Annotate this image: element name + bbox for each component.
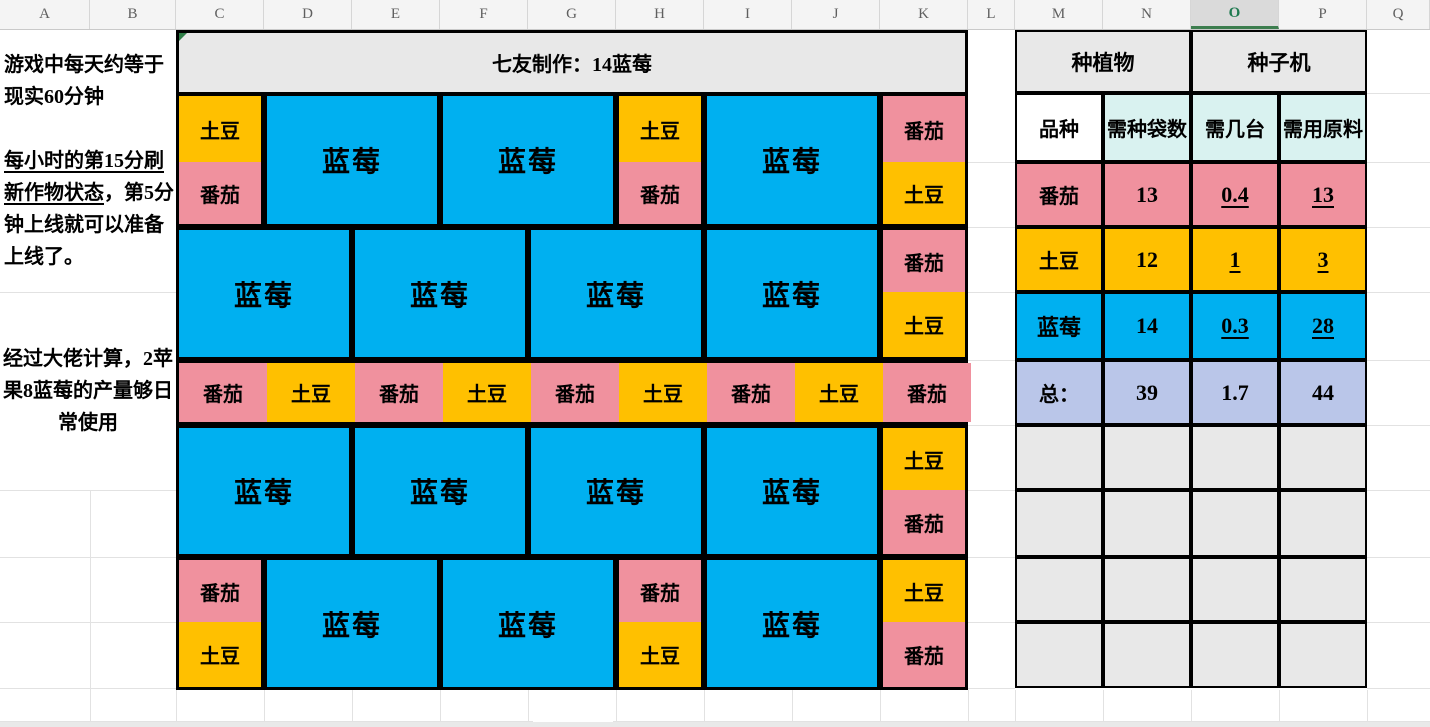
table-row-3-machines[interactable]: 1.7	[1191, 360, 1279, 425]
gridline	[968, 360, 1015, 361]
table-row-0-bags[interactable]: 13	[1103, 162, 1191, 227]
table-row-3-name-text: 总：	[1039, 378, 1079, 407]
table-col-header-1-text: 需种袋数	[1107, 113, 1187, 142]
table-group-header-plants[interactable]: 种植物	[1015, 30, 1191, 93]
table-group-header-plants-text: 种植物	[1072, 47, 1135, 77]
gridline	[968, 622, 1015, 623]
gridline	[528, 690, 529, 722]
table-empty-cell[interactable]	[1015, 622, 1103, 688]
table-row-0-name-text: 番茄	[1039, 180, 1079, 209]
note-text-game-time: 游戏中每天约等于现实60分钟每小时的第15分刷新作物状态，第5分钟上线就可以准备…	[2, 49, 176, 273]
table-row-2-machines[interactable]: 0.3	[1191, 292, 1279, 360]
gridline	[968, 557, 1015, 558]
farm-cell-blueberry[interactable]: 蓝莓	[704, 557, 880, 690]
farm-stack-block: 番茄土豆	[616, 557, 704, 690]
farm-cell-blueberry[interactable]: 蓝莓	[352, 227, 528, 360]
farm-stack-block: 土豆番茄	[880, 557, 968, 690]
note-cell-production[interactable]: 经过大佬计算，2苹果8蓝莓的产量够日常使用	[0, 292, 176, 490]
table-row-3-materials[interactable]: 44	[1279, 360, 1367, 425]
table-row-1-bags-text: 12	[1136, 247, 1158, 273]
farm-cell-blueberry[interactable]: 蓝莓	[440, 93, 616, 227]
table-col-header-3-text: 需用原料	[1283, 113, 1363, 142]
gridline	[968, 425, 1015, 426]
table-row-1-materials[interactable]: 3	[1279, 227, 1367, 292]
gridline	[1367, 162, 1430, 163]
table-row-1-name[interactable]: 土豆	[1015, 227, 1103, 292]
column-header-d[interactable]: D	[264, 0, 352, 29]
table-col-header-2-text: 需几台	[1205, 113, 1265, 142]
farm-cell-blueberry[interactable]: 蓝莓	[264, 557, 440, 690]
farm-cell-blueberry[interactable]: 蓝莓	[528, 425, 704, 557]
gridline	[1367, 360, 1430, 361]
gridline	[1367, 557, 1430, 558]
gridline	[0, 490, 176, 491]
gridline	[968, 227, 1015, 228]
table-row-3-materials-text: 44	[1312, 380, 1334, 406]
table-row-0-materials-text: 13	[1312, 182, 1334, 208]
column-header-l[interactable]: L	[968, 0, 1015, 29]
farm-cell-tomato[interactable]: 番茄	[179, 560, 261, 622]
column-header-q[interactable]: Q	[1367, 0, 1430, 29]
table-row-0-bags-text: 13	[1136, 182, 1158, 208]
gridline	[1103, 690, 1104, 722]
column-header-f[interactable]: F	[440, 0, 528, 29]
farm-cell-potato[interactable]: 土豆	[883, 428, 965, 490]
table-empty-cell[interactable]	[1279, 557, 1367, 622]
column-header-c[interactable]: C	[176, 0, 264, 29]
gridline	[0, 557, 176, 558]
gridline	[1367, 690, 1368, 722]
table-empty-cell[interactable]	[1279, 622, 1367, 688]
table-row-2-name-text: 蓝莓	[1037, 310, 1081, 342]
farm-cell-potato[interactable]: 土豆	[179, 622, 261, 687]
farm-cell-potato[interactable]: 土豆	[619, 622, 701, 687]
farm-stack-block: 土豆番茄	[616, 93, 704, 227]
gridline	[616, 690, 617, 722]
gridline	[1191, 690, 1192, 722]
column-header-j[interactable]: J	[792, 0, 880, 29]
gridline	[176, 690, 177, 722]
farm-stack-block: 番茄土豆	[176, 557, 264, 690]
gridline	[1367, 688, 1430, 689]
gridline	[1367, 227, 1430, 228]
farm-cell-tomato[interactable]: 番茄	[355, 363, 443, 422]
column-header-p[interactable]: P	[1279, 0, 1367, 29]
farm-cell-tomato[interactable]: 番茄	[179, 363, 267, 422]
table-row-1-materials-text: 3	[1318, 247, 1329, 273]
table-row-2-machines-text: 0.3	[1221, 313, 1249, 339]
farm-stack-block: 土豆番茄	[176, 93, 264, 227]
gridline	[352, 690, 353, 722]
table-row-1-bags[interactable]: 12	[1103, 227, 1191, 292]
table-row-2-bags-text: 14	[1136, 313, 1158, 339]
gridline	[440, 690, 441, 722]
column-header-m[interactable]: M	[1015, 0, 1103, 29]
horizontal-scrollbar[interactable]	[0, 722, 1430, 727]
table-empty-cell[interactable]	[1015, 490, 1103, 557]
table-row-2-bags[interactable]: 14	[1103, 292, 1191, 360]
column-header-k[interactable]: K	[880, 0, 968, 29]
column-header-g[interactable]: G	[528, 0, 616, 29]
table-group-header-seed-machine-text: 种子机	[1248, 47, 1311, 77]
gridline	[968, 688, 1015, 689]
gridline	[880, 690, 881, 722]
farm-cell-blueberry[interactable]: 蓝莓	[528, 227, 704, 360]
table-row-2-materials-text: 28	[1312, 313, 1334, 339]
farm-cell-tomato[interactable]: 番茄	[883, 490, 965, 554]
farm-stack-block: 土豆番茄	[880, 425, 968, 557]
table-col-header-0[interactable]: 品种	[1015, 93, 1103, 162]
farm-cell-tomato[interactable]: 番茄	[179, 162, 261, 224]
farm-cell-potato[interactable]: 土豆	[883, 162, 965, 224]
farm-cell-tomato[interactable]: 番茄	[883, 230, 965, 292]
farm-cell-blueberry[interactable]: 蓝莓	[440, 557, 616, 690]
gridline	[792, 690, 793, 722]
column-header-e[interactable]: E	[352, 0, 440, 29]
farm-stack-block: 番茄土豆	[880, 93, 968, 227]
table-empty-cell[interactable]	[1103, 425, 1191, 490]
farm-cell-blueberry[interactable]: 蓝莓	[704, 227, 880, 360]
farm-cell-tomato[interactable]: 番茄	[707, 363, 795, 422]
gridline	[968, 162, 1015, 163]
gridline	[968, 292, 1015, 293]
farm-stack-block: 番茄土豆	[880, 227, 968, 360]
table-row-0-name[interactable]: 番茄	[1015, 162, 1103, 227]
gridline	[1367, 622, 1430, 623]
gridline	[0, 688, 176, 689]
table-col-header-1[interactable]: 需种袋数	[1103, 93, 1191, 162]
column-header-i[interactable]: I	[704, 0, 792, 29]
column-header-a[interactable]: A	[0, 0, 90, 29]
table-row-0-materials[interactable]: 13	[1279, 162, 1367, 227]
table-empty-cell[interactable]	[1103, 490, 1191, 557]
farm-row-strip: 番茄土豆番茄土豆番茄土豆番茄土豆番茄	[176, 360, 968, 425]
farm-cell-tomato[interactable]: 番茄	[883, 96, 965, 162]
gridline	[90, 490, 91, 722]
table-row-3-bags-text: 39	[1136, 380, 1158, 406]
farm-plot-title-cell[interactable]: 七友制作：14蓝莓	[176, 30, 968, 95]
farm-cell-potato[interactable]: 土豆	[795, 363, 883, 422]
table-empty-cell[interactable]	[1191, 490, 1279, 557]
table-empty-cell[interactable]	[1191, 425, 1279, 490]
farm-cell-tomato[interactable]: 番茄	[619, 560, 701, 622]
table-empty-cell[interactable]	[1015, 425, 1103, 490]
gridline	[1367, 93, 1430, 94]
gridline	[704, 690, 705, 722]
farm-cell-tomato[interactable]: 番茄	[883, 363, 971, 422]
farm-cell-blueberry[interactable]: 蓝莓	[264, 93, 440, 227]
farm-cell-potato[interactable]: 土豆	[619, 363, 707, 422]
column-header-o[interactable]: O	[1191, 0, 1279, 29]
note-text-production: 经过大佬计算，2苹果8蓝莓的产量够日常使用	[2, 343, 174, 439]
gridline	[1279, 690, 1280, 722]
table-row-2-materials[interactable]: 28	[1279, 292, 1367, 360]
table-empty-cell[interactable]	[1279, 425, 1367, 490]
table-empty-cell[interactable]	[1279, 490, 1367, 557]
farm-cell-potato[interactable]: 土豆	[267, 363, 355, 422]
farm-cell-potato[interactable]: 土豆	[619, 96, 701, 162]
table-col-header-2[interactable]: 需几台	[1191, 93, 1279, 162]
gridline	[968, 690, 969, 722]
column-header-n[interactable]: N	[1103, 0, 1191, 29]
gridline	[1367, 292, 1430, 293]
column-header-h[interactable]: H	[616, 0, 704, 29]
table-row-1-name-text: 土豆	[1039, 245, 1079, 274]
gridline	[0, 622, 176, 623]
farm-cell-blueberry[interactable]: 蓝莓	[352, 425, 528, 557]
table-row-3-bags[interactable]: 39	[1103, 360, 1191, 425]
farm-cell-potato[interactable]: 土豆	[883, 560, 965, 622]
cell-corner-flag-triangle	[179, 33, 187, 41]
table-row-2-name[interactable]: 蓝莓	[1015, 292, 1103, 360]
farm-cell-tomato[interactable]: 番茄	[531, 363, 619, 422]
table-row-1-machines-text: 1	[1230, 247, 1241, 273]
spreadsheet-screen: ABCDEFGHIJKLMNOPQ 游戏中每天约等于现实60分钟每小时的第15分…	[0, 0, 1430, 727]
table-col-header-0-text: 品种	[1039, 113, 1079, 142]
table-empty-cell[interactable]	[1103, 622, 1191, 688]
gridline	[968, 490, 1015, 491]
table-empty-cell[interactable]	[1191, 557, 1279, 622]
column-header-strip: ABCDEFGHIJKLMNOPQ	[0, 0, 1430, 30]
table-empty-cell[interactable]	[1191, 622, 1279, 688]
note-cell-game-time[interactable]: 游戏中每天约等于现实60分钟每小时的第15分刷新作物状态，第5分钟上线就可以准备…	[2, 30, 176, 292]
gridline	[1015, 690, 1016, 722]
gridline	[264, 690, 265, 722]
farm-cell-potato[interactable]: 土豆	[179, 96, 261, 162]
farm-cell-blueberry[interactable]: 蓝莓	[176, 425, 352, 557]
farm-cell-blueberry[interactable]: 蓝莓	[704, 93, 880, 227]
table-empty-cell[interactable]	[1103, 557, 1191, 622]
table-empty-cell[interactable]	[1015, 557, 1103, 622]
table-group-header-seed-machine[interactable]: 种子机	[1191, 30, 1367, 93]
farm-cell-tomato[interactable]: 番茄	[883, 622, 965, 687]
table-row-3-name[interactable]: 总：	[1015, 360, 1103, 425]
farm-cell-potato[interactable]: 土豆	[443, 363, 531, 422]
table-row-0-machines-text: 0.4	[1221, 182, 1249, 208]
farm-cell-blueberry[interactable]: 蓝莓	[704, 425, 880, 557]
farm-cell-blueberry[interactable]: 蓝莓	[176, 227, 352, 360]
table-row-1-machines[interactable]: 1	[1191, 227, 1279, 292]
gridline	[1367, 490, 1430, 491]
farm-cell-potato[interactable]: 土豆	[883, 292, 965, 357]
column-header-b[interactable]: B	[90, 0, 176, 29]
table-row-0-machines[interactable]: 0.4	[1191, 162, 1279, 227]
gridline	[1367, 425, 1430, 426]
table-row-3-machines-text: 1.7	[1221, 380, 1249, 406]
farm-cell-tomato[interactable]: 番茄	[619, 162, 701, 224]
table-col-header-3[interactable]: 需用原料	[1279, 93, 1367, 162]
